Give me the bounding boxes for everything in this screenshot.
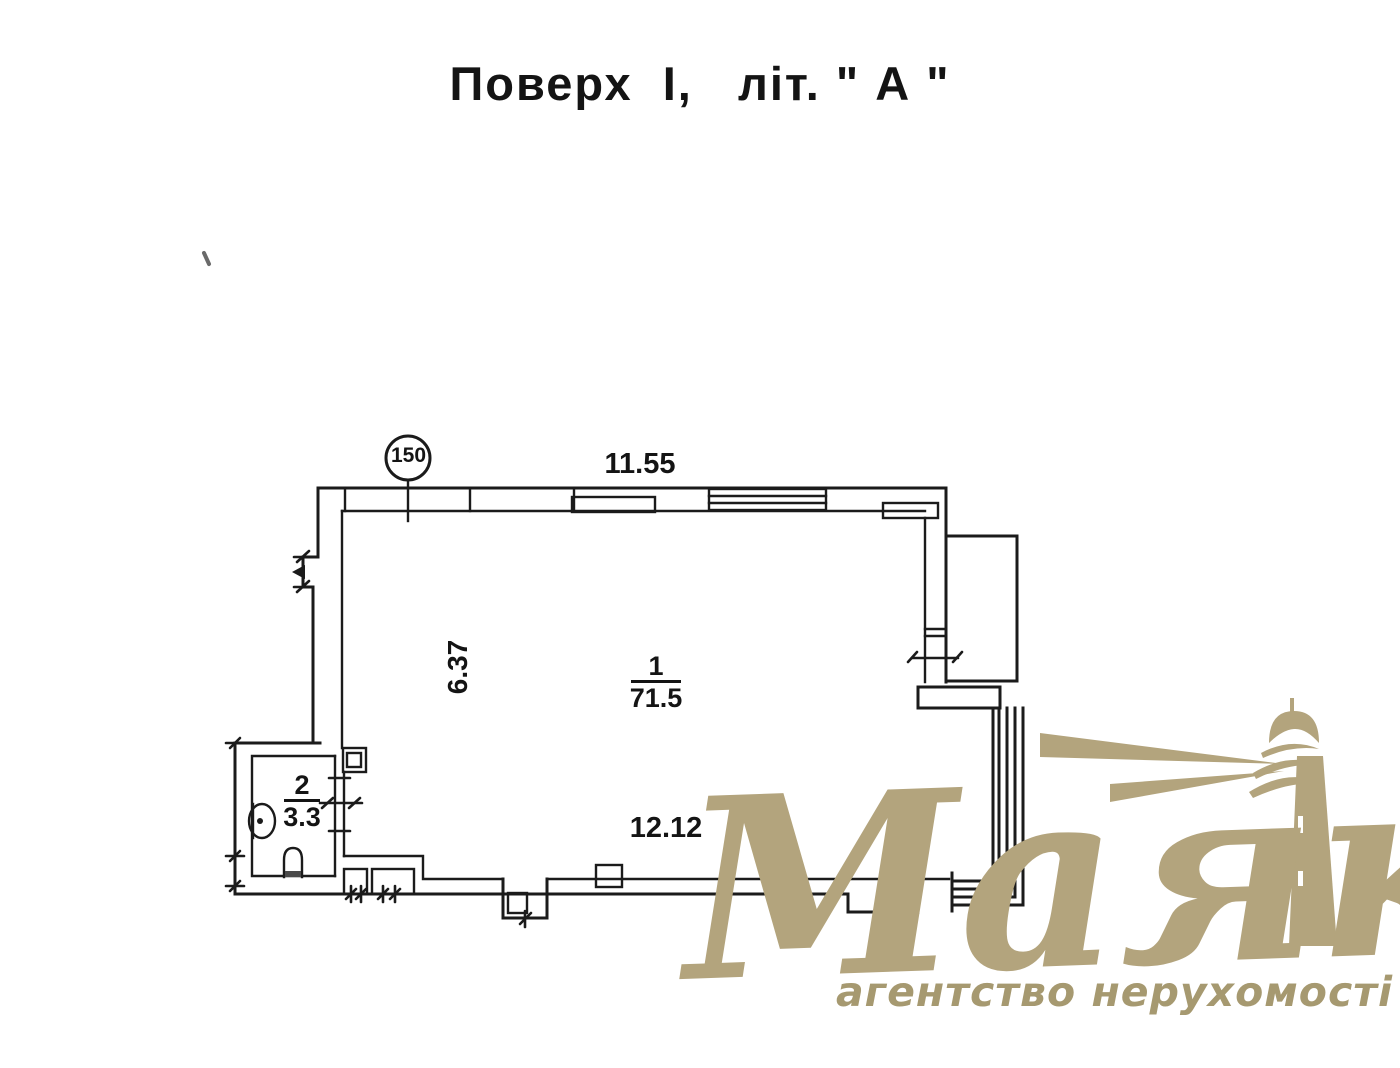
wall-pier — [918, 687, 1000, 708]
scanned-floor-plan-page: Поверх I, літ. " А " 150 11.55 6.37 12.1… — [0, 0, 1400, 1068]
page-title: Поверх I, літ. " А " — [0, 56, 1400, 111]
shaft-box-inner — [347, 753, 361, 767]
window-wall-right — [952, 708, 1023, 911]
room-2-label: 2 3.3 — [266, 771, 338, 833]
dimension-left-height: 6.37 — [442, 626, 474, 708]
room-1-area: 71.5 — [611, 683, 701, 714]
leader-bubble-label: 150 — [386, 444, 431, 468]
door-swing-marker — [292, 565, 305, 579]
room-2-number: 2 — [284, 771, 319, 802]
top-wall — [318, 488, 946, 518]
toilet-icon — [284, 848, 302, 877]
room-1-number: 1 — [631, 652, 680, 683]
bottom-wall — [235, 856, 949, 927]
room-2-area: 3.3 — [266, 802, 338, 833]
room-1-label: 1 71.5 — [611, 652, 701, 714]
dimension-top-width: 11.55 — [592, 448, 688, 481]
scan-artifact — [204, 253, 209, 264]
left-wall — [292, 488, 342, 748]
floor-plan-drawing — [0, 0, 1400, 1068]
window-glazing-top — [709, 489, 826, 510]
dimension-bottom-width: 12.12 — [618, 812, 714, 845]
window-icon — [572, 497, 655, 512]
right-wall — [908, 488, 1017, 708]
bottom-piers — [344, 869, 414, 902]
column — [596, 865, 622, 887]
column — [508, 893, 527, 913]
